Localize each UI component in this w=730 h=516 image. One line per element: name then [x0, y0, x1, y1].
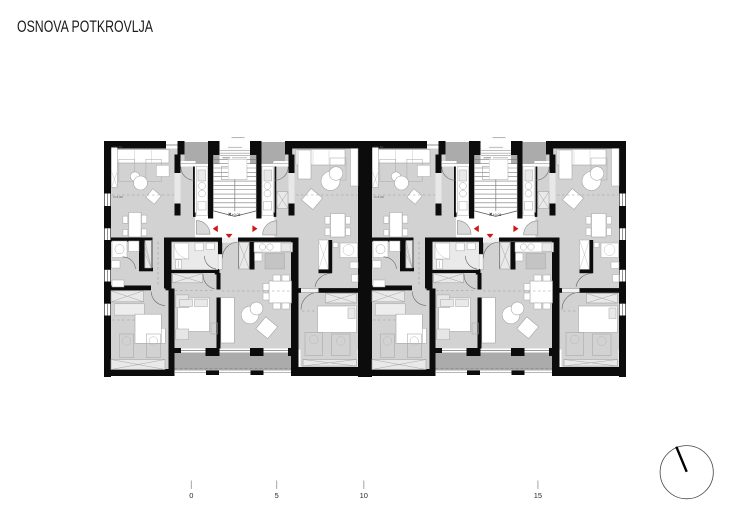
svg-text:5: 5	[275, 491, 279, 500]
svg-text:15: 15	[534, 491, 542, 500]
svg-text:OSNOVA POTKROVLJA: OSNOVA POTKROVLJA	[17, 18, 153, 36]
svg-text:0: 0	[189, 491, 193, 500]
svg-text:10: 10	[360, 491, 368, 500]
